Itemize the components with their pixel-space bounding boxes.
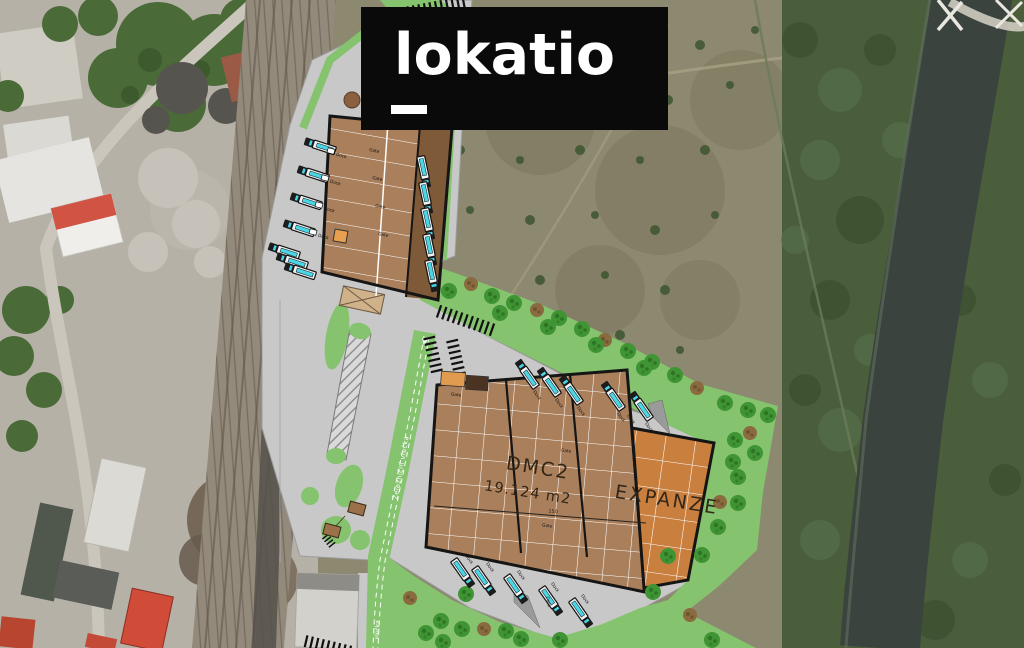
dimension-label: 150 — [548, 509, 558, 516]
silo-tank — [344, 92, 360, 108]
aerial-forest — [755, 0, 1024, 648]
lokatio-logo-underline — [391, 105, 427, 114]
rail-siding-label-short: vlečka — [373, 620, 381, 640]
lokatio-logo-text: lokatio — [394, 27, 615, 84]
gate-label: Gate — [451, 392, 462, 399]
screenshot-root: DMC2 19.124 m2 EXPANZE 150 Dock Dock Doc… — [0, 0, 1024, 648]
lokatio-logo: lokatio — [361, 7, 668, 130]
